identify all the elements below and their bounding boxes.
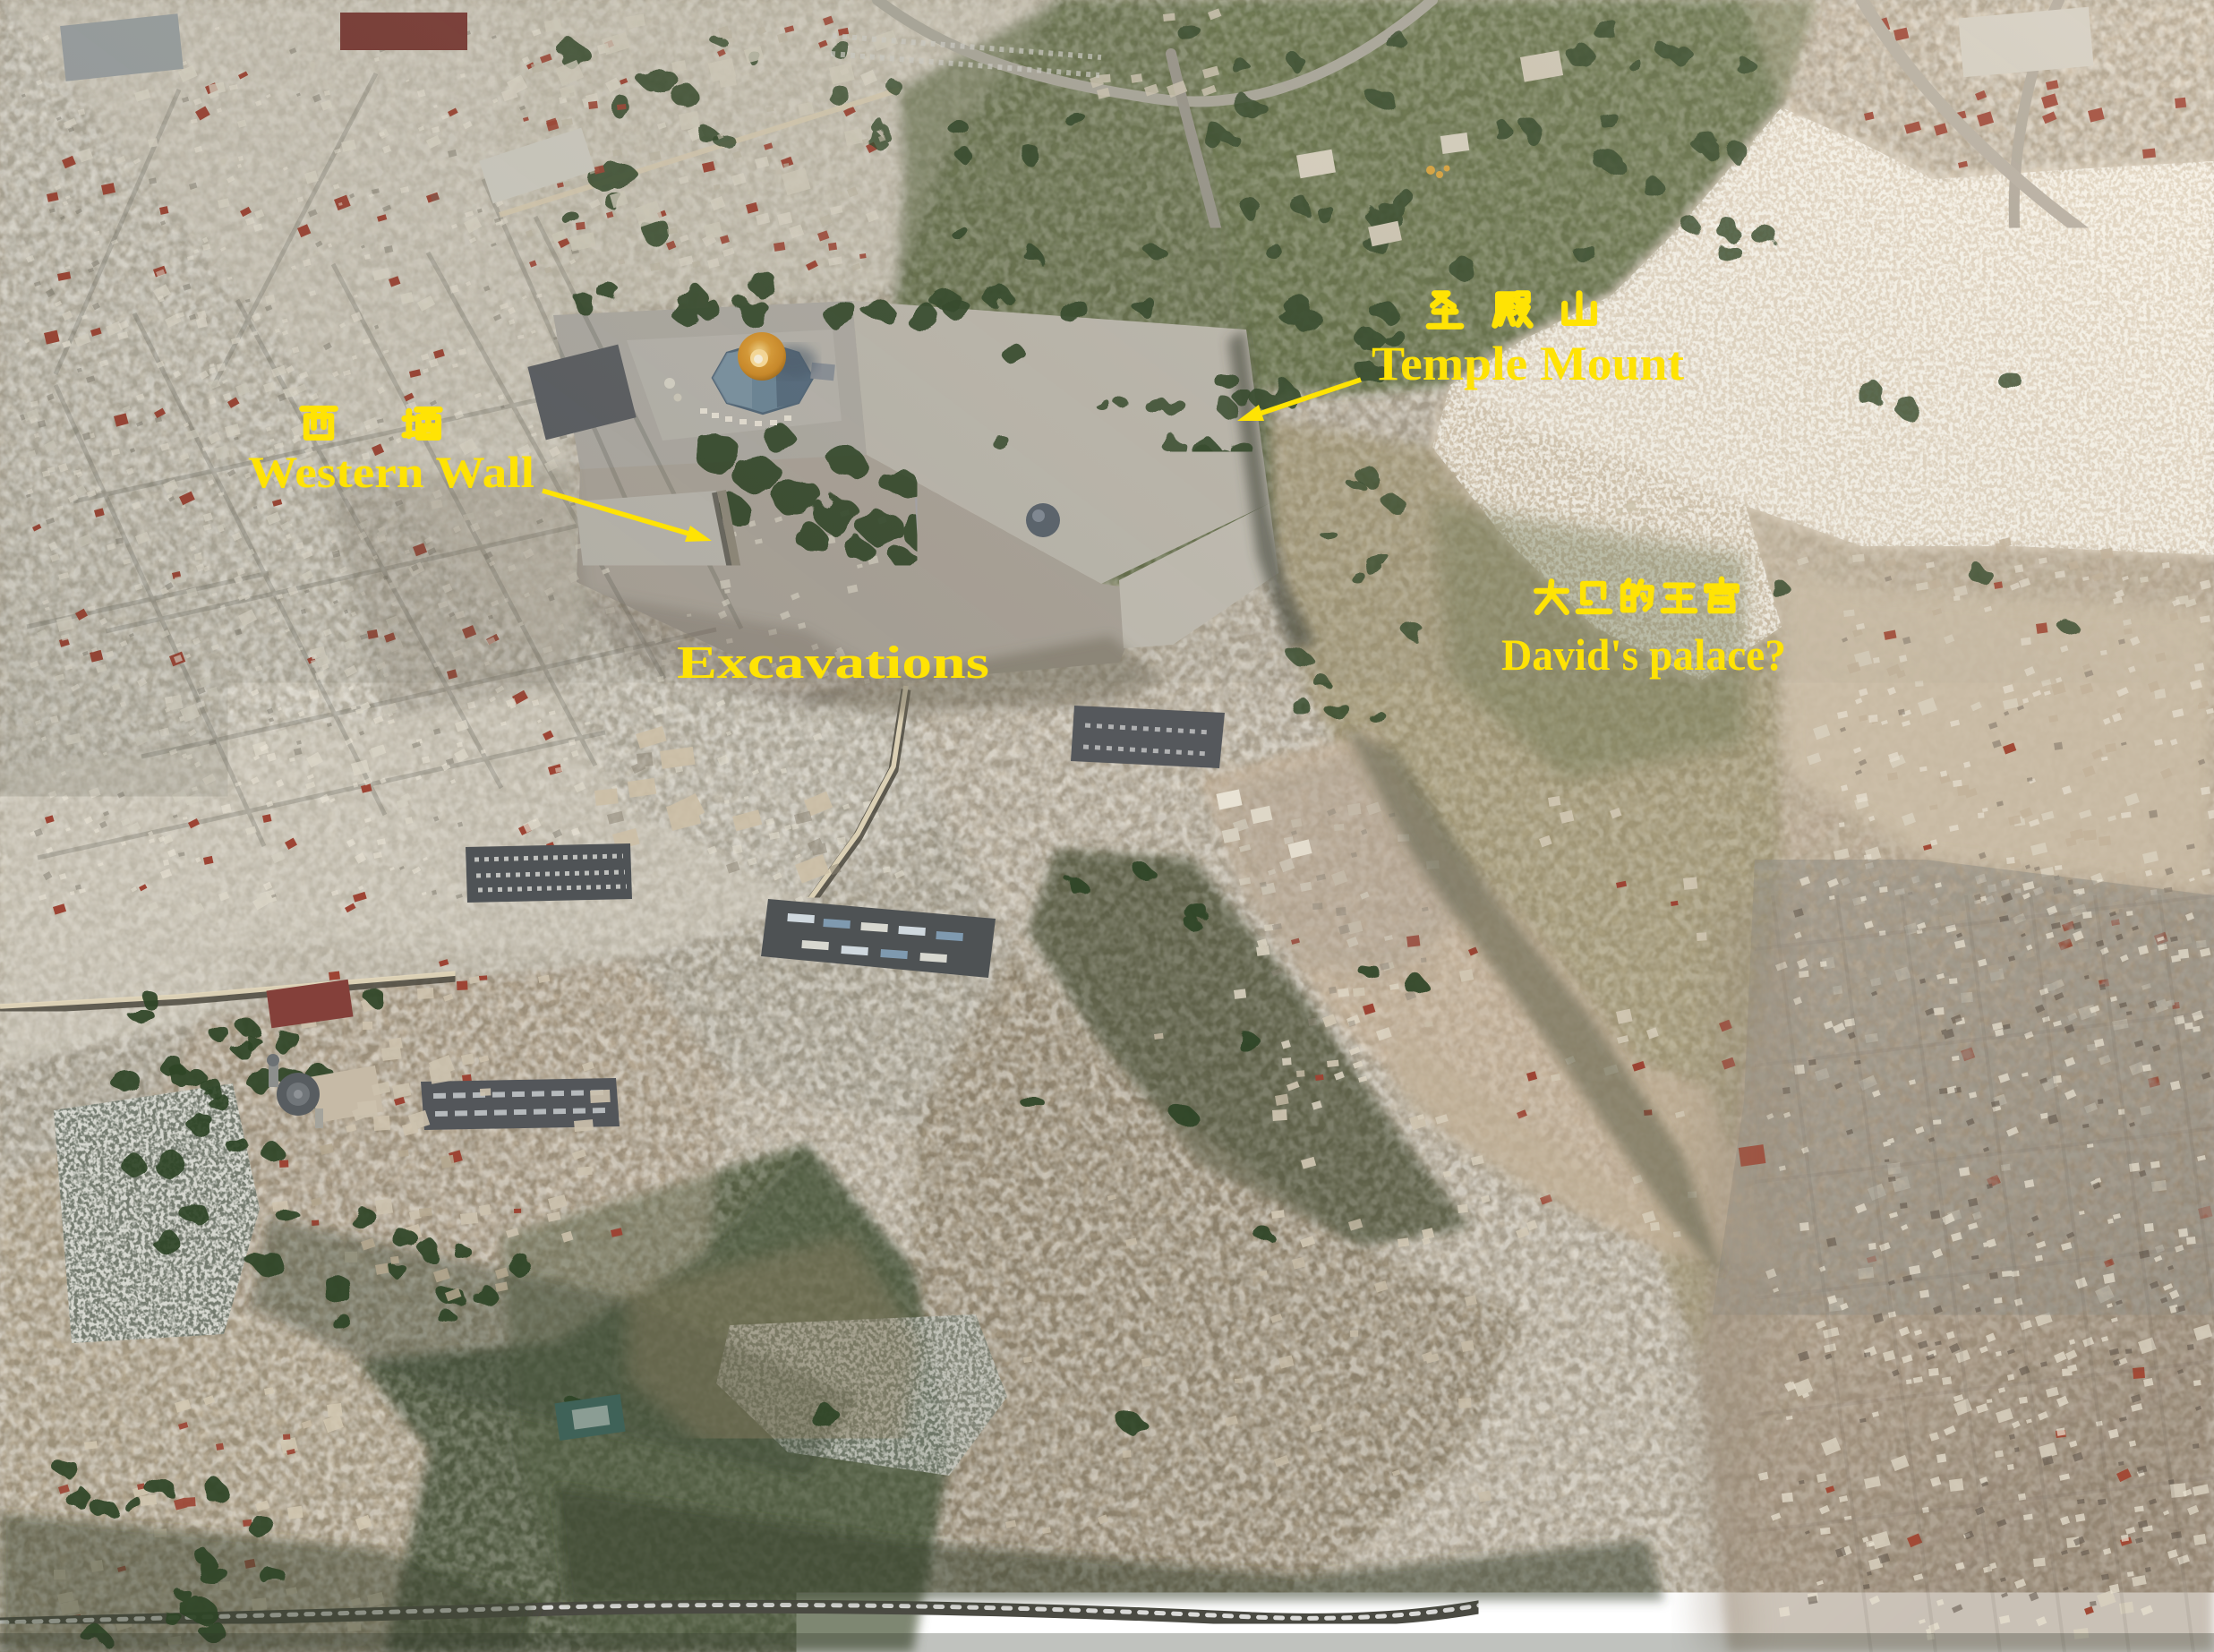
svg-text:Temple Mount: Temple Mount [1372, 337, 1684, 390]
svg-text:David's palace?: David's palace? [1501, 629, 1786, 680]
svg-text:(Givati Parking Lot): (Givati Parking Lot) [660, 685, 952, 715]
svg-text:Probable borders of Jerusalem: Probable borders of Jerusalem [1779, 1314, 2214, 1347]
svg-text:Excavations: Excavations [677, 638, 989, 689]
svg-text:Valley: Valley [1932, 1079, 2072, 1129]
svg-text:Central Valley: Central Valley [996, 1160, 1312, 1211]
svg-text:in time of David: in time of David [1867, 1351, 2147, 1383]
svg-text:Western Wall: Western Wall [248, 447, 534, 497]
svg-text:©BiblePlaces.com: ©BiblePlaces.com [34, 1636, 363, 1652]
svg-text:Hinnom Valley: Hinnom Valley [1271, 1511, 1592, 1561]
